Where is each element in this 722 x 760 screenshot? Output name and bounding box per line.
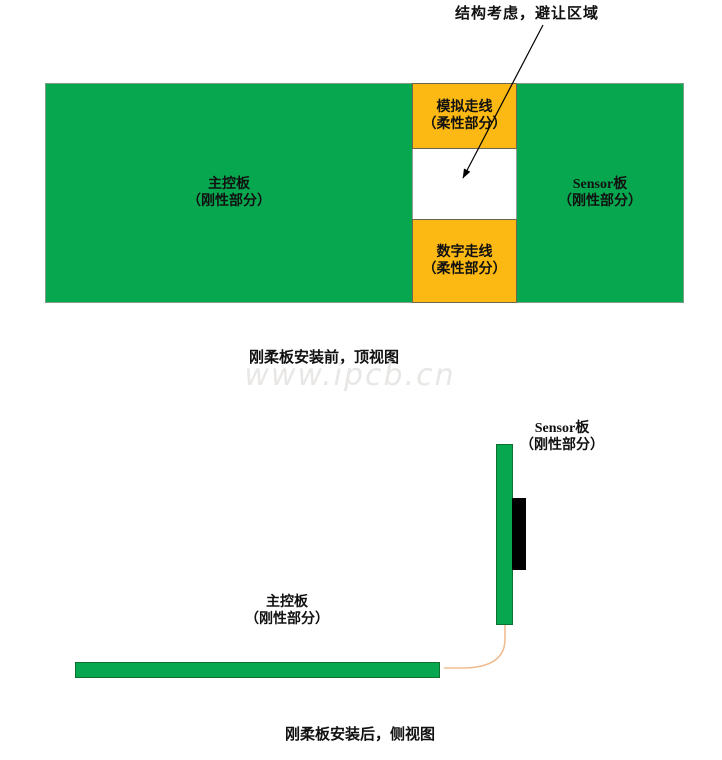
digital-flex-part: （柔性部分） xyxy=(423,261,507,278)
main-side-name: 主控板 xyxy=(187,594,387,611)
main-board-side-bar xyxy=(75,662,440,678)
sensor-side-name: Sensor板 xyxy=(482,420,642,437)
flex-cable-curve xyxy=(430,615,522,681)
main-board-label: 主控板 （刚性部分） xyxy=(187,176,271,210)
side-view-caption: 刚柔板安装后，侧视图 xyxy=(160,723,560,744)
main-side-part: （刚性部分） xyxy=(187,611,387,628)
watermark-text: www.ipcb.cn xyxy=(150,358,550,393)
main-board-side-label: 主控板 （刚性部分） xyxy=(187,594,387,628)
main-board-name: 主控板 xyxy=(187,176,271,193)
component-block xyxy=(512,498,526,570)
rigid-flex-pcb-diagram: 结构考虑，避让区域 主控板 （刚性部分） 模拟走线 （柔性部分） xyxy=(0,0,722,760)
sensor-board-part: （刚性部分） xyxy=(558,193,642,210)
digital-flex-name: 数字走线 xyxy=(423,244,507,261)
top-view-board: 主控板 （刚性部分） 模拟走线 （柔性部分） 数字走线 （柔性部分） Sens xyxy=(45,83,684,303)
sensor-board-side-bar xyxy=(496,444,513,625)
main-board-region: 主控板 （刚性部分） xyxy=(45,83,412,303)
sensor-board-label: Sensor板 （刚性部分） xyxy=(558,176,642,210)
annotation-arrow-icon xyxy=(440,20,560,192)
digital-flex-region: 数字走线 （柔性部分） xyxy=(412,219,517,303)
sensor-board-name: Sensor板 xyxy=(558,176,642,193)
main-board-part: （刚性部分） xyxy=(187,193,271,210)
digital-flex-label: 数字走线 （柔性部分） xyxy=(423,244,507,278)
